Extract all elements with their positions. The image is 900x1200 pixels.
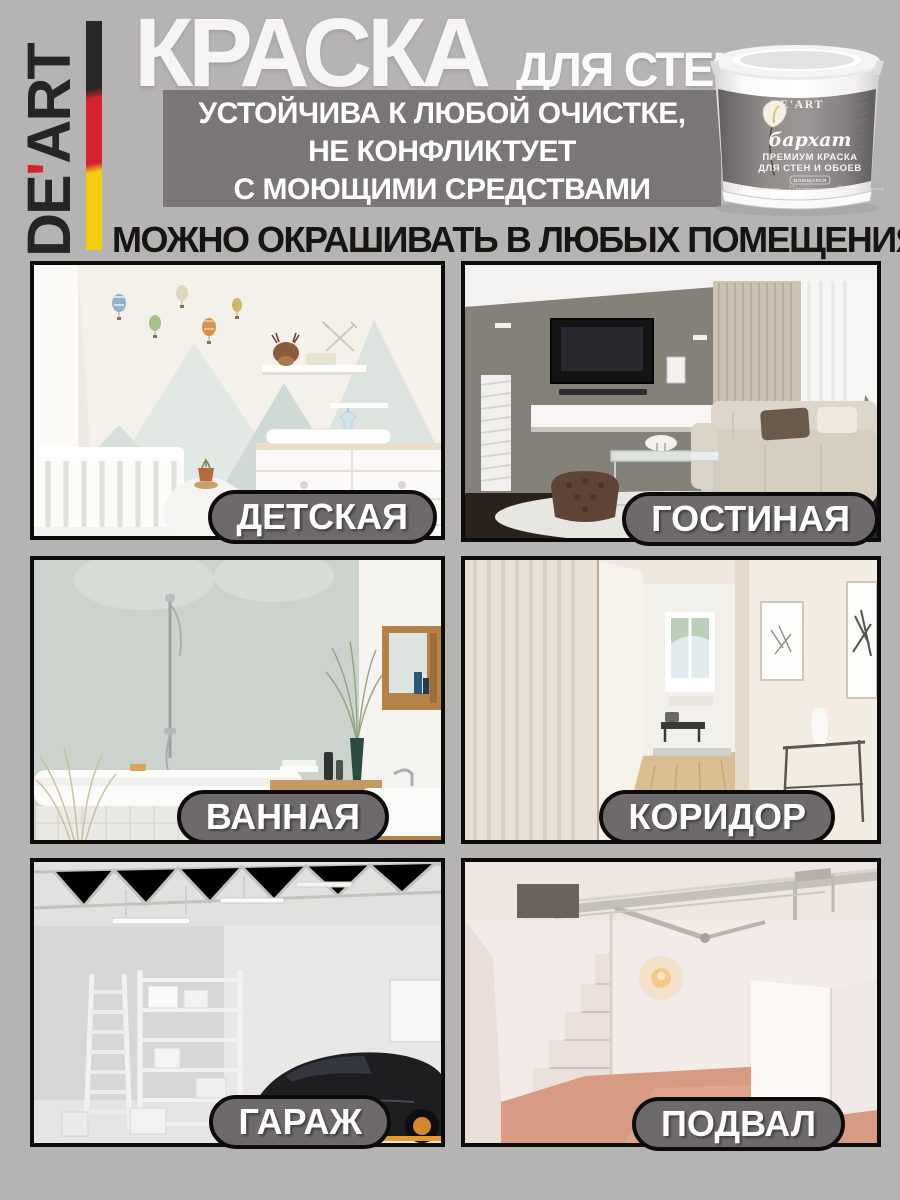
bucket-type-line2: ДЛЯ СТЕН И ОБОЕВ: [758, 163, 861, 174]
room-label-corridor: КОРИДОР: [599, 790, 835, 844]
paint-bucket: DE'ART бархат ПРЕМИУМ КРАСКА ДЛЯ СТЕН И …: [698, 5, 896, 219]
room-label-basement: ПОДВАЛ: [632, 1097, 845, 1151]
bucket-badge: МОЮЩАЯСЯ: [793, 178, 826, 183]
wall-cabinet: [390, 980, 441, 1042]
partition-wall: [751, 980, 877, 1116]
photo-basement: ПОДВАЛ: [461, 858, 881, 1147]
bucket-feature-1: Устойчива к мытью: [744, 186, 780, 191]
photo-bathroom: ВАННАЯ: [30, 556, 445, 844]
bucket-series-text: бархат: [768, 129, 851, 151]
bucket-feature-3: Полная укрывистость: [844, 186, 884, 191]
photo-corridor: КОРИДОР: [461, 556, 881, 844]
brand-logo: DE'ART: [10, 19, 88, 257]
tv-icon: [551, 319, 653, 395]
photo-garage: ГАРАЖ: [30, 858, 445, 1147]
german-flag-stripe: [86, 21, 102, 250]
bucket-type-line1: ПРЕМИУМ КРАСКА: [762, 152, 857, 163]
stair-hatch: [517, 884, 579, 918]
section-headline: МОЖНО ОКРАШИВАТЬ В ЛЮБЫХ ПОМЕЩЕНИЯХ: [112, 219, 888, 261]
mirror-cabinet: [382, 626, 441, 710]
benefit-box: УСТОЙЧИВА К ЛЮБОЙ ОЧИСТКЕ, НЕ КОНФЛИКТУЕ…: [163, 90, 721, 207]
benefit-line-3: С МОЮЩИМИ СРЕДСТВАМИ: [163, 171, 721, 209]
room-label-nursery: ДЕТСКАЯ: [208, 490, 438, 544]
benefit-line-2: НЕ КОНФЛИКТУЕТ: [163, 133, 721, 171]
shelf-column: [481, 375, 511, 491]
brand-logo-de: DE: [15, 176, 83, 257]
wall-light-icon: [639, 956, 683, 1000]
photo-nursery: ДЕТСКАЯ: [30, 261, 445, 540]
bucket-feature-2: Без резкого запаха: [796, 186, 832, 191]
room-label-living-room: ГОСТИНАЯ: [622, 492, 879, 546]
promo-poster: DE'ART КРАСКА ДЛЯ СТЕН УСТОЙЧИВА К ЛЮБОЙ…: [0, 0, 900, 1200]
ottoman-pouf: [551, 471, 619, 522]
crib: [34, 447, 184, 536]
tv-console: [531, 405, 719, 432]
picture-frame: [761, 602, 803, 680]
photo-living-room: ГОСТИНАЯ: [461, 261, 881, 542]
page-title: КРАСКА: [134, 4, 486, 101]
bucket-features: Устойчива к мытью Без резкого запаха Пол…: [738, 186, 884, 191]
benefit-line-1: УСТОЙЧИВА К ЛЮБОЙ ОЧИСТКЕ,: [163, 95, 721, 133]
picture-frame-right: [847, 582, 877, 698]
paint-bucket-graphic: DE'ART бархат ПРЕМИУМ КРАСКА ДЛЯ СТЕН И …: [698, 5, 896, 219]
brand-logo-apostrophe: ': [15, 164, 83, 177]
room-label-bathroom: ВАННАЯ: [177, 790, 389, 844]
brand-logo-art: ART: [15, 44, 83, 163]
room-label-garage: ГАРАЖ: [209, 1095, 391, 1149]
